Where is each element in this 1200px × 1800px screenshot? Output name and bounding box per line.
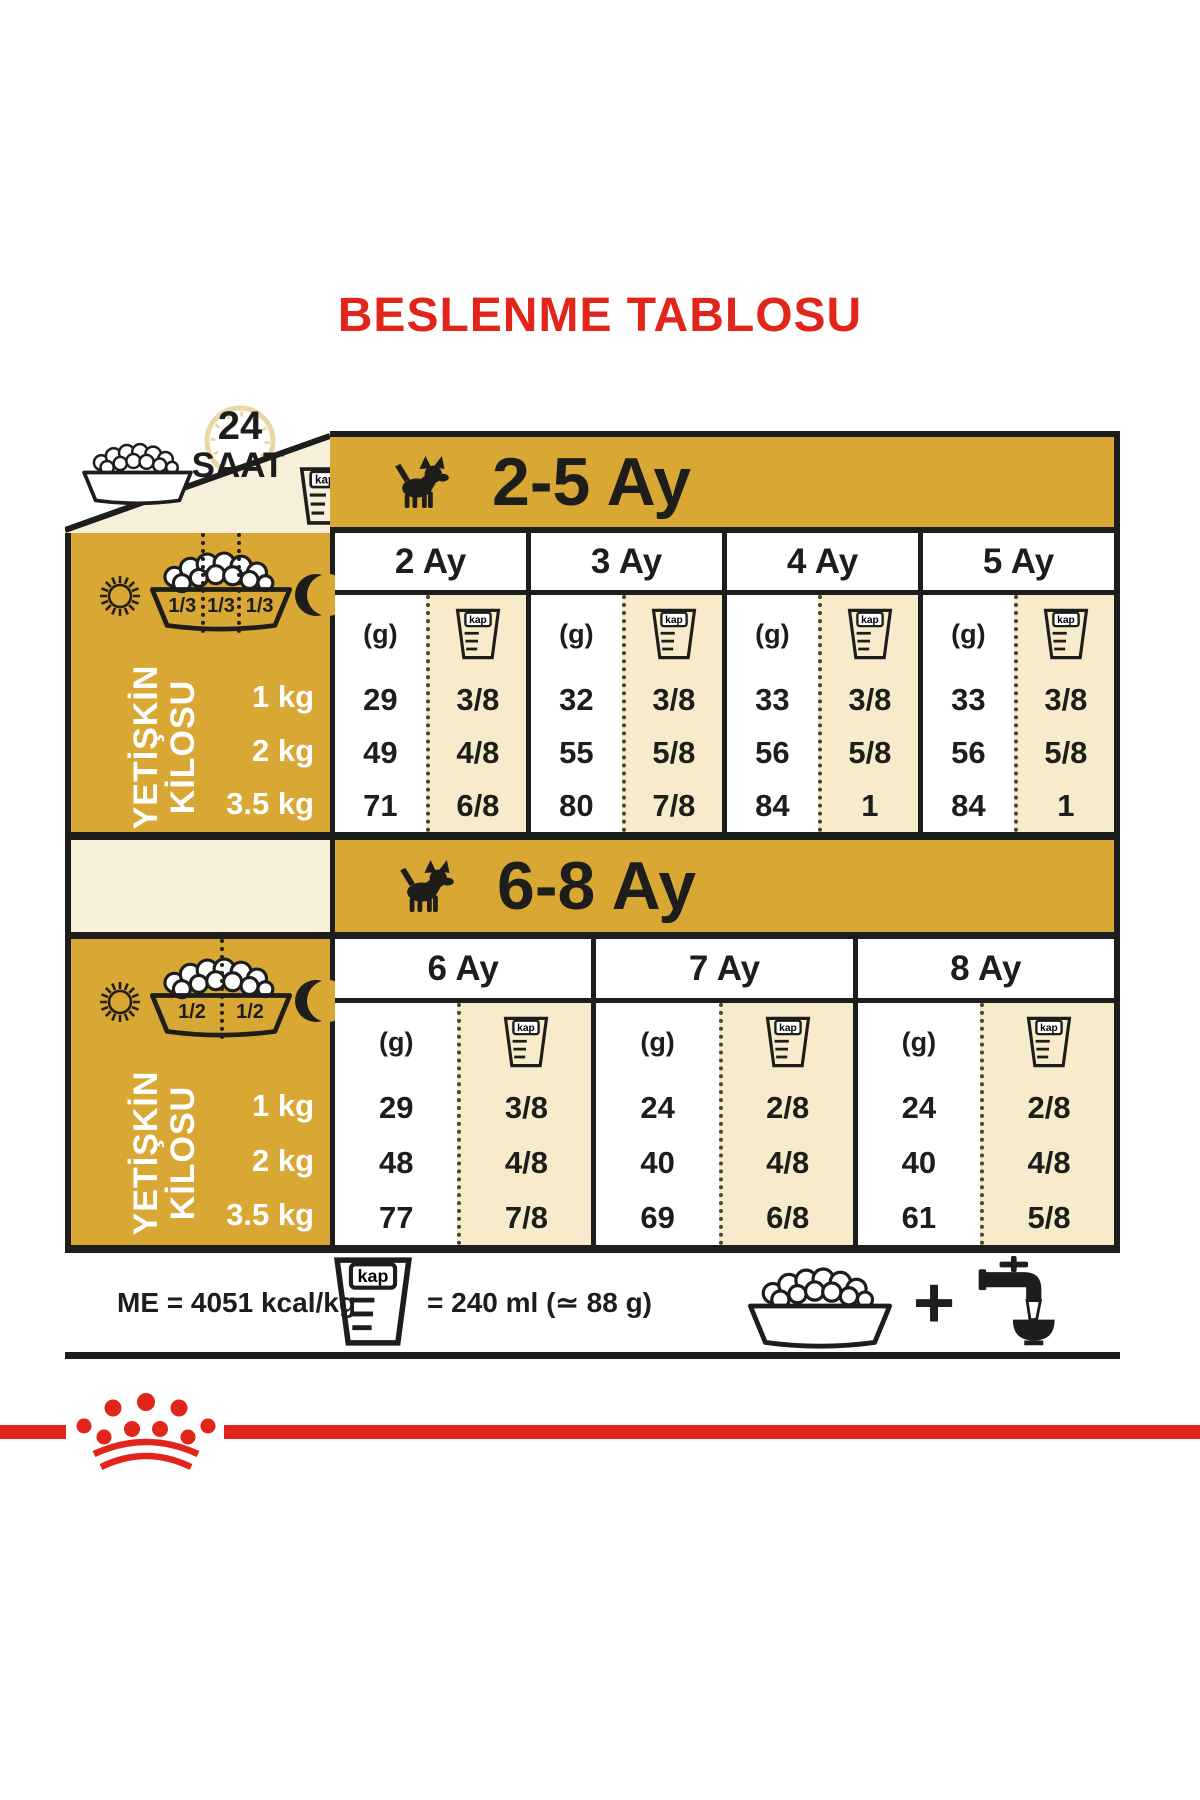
grams-value: 33 xyxy=(727,673,818,726)
cup-subcolumn: kap 2/8 4/8 6/8 xyxy=(719,1003,853,1245)
grams-unit: (g) xyxy=(858,1003,980,1081)
cup-value: 3/8 xyxy=(461,1081,591,1136)
grams-value: 84 xyxy=(923,779,1014,832)
section1-age-band: 2-5 Ay xyxy=(330,431,1120,527)
fraction: 1/3 xyxy=(207,595,235,618)
grams-value: 84 xyxy=(727,779,818,832)
cup-subcolumn: kap 3/8 4/8 6/8 xyxy=(426,595,526,832)
chihuahua-icon xyxy=(395,858,459,914)
me-energy-text: ME = 4051 kcal/kg xyxy=(117,1253,356,1352)
grams-subcolumn: (g) 33 56 84 xyxy=(727,595,818,832)
section2-data-grid: (g) 29 48 77 kap 3/8 4/8 7/8 (g) 24 40 6… xyxy=(330,1003,1120,1245)
portion-divider-dashed xyxy=(237,533,241,633)
grams-value: 80 xyxy=(531,779,622,832)
portion-fractions: 1/3 1/3 1/3 xyxy=(163,595,279,618)
divider-bar xyxy=(65,832,1120,840)
section1-month-header-row: 2 Ay 3 Ay 4 Ay 5 Ay xyxy=(330,527,1120,595)
cup-value: 1 xyxy=(1018,779,1114,832)
cup-value: 6/8 xyxy=(723,1190,853,1245)
month-column-2ay: (g) 29 49 71 kap 3/8 4/8 6/8 xyxy=(335,595,531,832)
measuring-cup-icon: kap xyxy=(822,595,918,673)
svg-text:kap: kap xyxy=(469,615,487,626)
fraction: 1/2 xyxy=(236,1001,264,1024)
hours-24-label: 24 xyxy=(195,406,285,446)
grams-value: 56 xyxy=(727,726,818,779)
grams-subcolumn: (g) 29 49 71 xyxy=(335,595,426,832)
grams-unit: (g) xyxy=(335,595,426,673)
cup-value: 3/8 xyxy=(1018,673,1114,726)
svg-text:kap: kap xyxy=(1057,615,1075,626)
red-divider-right xyxy=(224,1425,1200,1439)
measuring-cup-icon: kap xyxy=(333,1256,413,1352)
saat-label: SAAT xyxy=(184,448,292,483)
section2-title: 6-8 Ay xyxy=(497,852,696,920)
cup-value: 7/8 xyxy=(626,779,722,832)
sun-icon xyxy=(91,567,149,630)
plus-sign: + xyxy=(913,1253,955,1352)
weight-row-label: 2 kg xyxy=(184,1143,314,1183)
svg-text:kap: kap xyxy=(665,615,683,626)
cup-subcolumn: kap 3/8 5/8 1 xyxy=(818,595,918,832)
section2-sidebar: 1/2 1/2 YETİŞKİN KİLOSU 1 kg 2 kg 3.5 kg xyxy=(65,939,330,1245)
cup-value: 3/8 xyxy=(626,673,722,726)
grams-subcolumn: (g) 24 40 69 xyxy=(596,1003,718,1245)
cup-subcolumn: kap 3/8 5/8 1 xyxy=(1014,595,1114,832)
cup-value: 5/8 xyxy=(984,1190,1114,1245)
feeding-table-page: BESLENME TABLOSU 24 SAAT kap xyxy=(0,0,1200,1800)
section2-left-cell xyxy=(65,840,330,932)
cup-value: 5/8 xyxy=(822,726,918,779)
weight-row-label: 2 kg xyxy=(184,733,314,773)
grams-value: 29 xyxy=(335,673,426,726)
grams-value: 77 xyxy=(335,1190,457,1245)
month-header: 6 Ay xyxy=(335,939,596,998)
measuring-cup-icon: kap xyxy=(626,595,722,673)
moon-icon xyxy=(295,569,335,626)
cup-value: 2/8 xyxy=(984,1081,1114,1136)
measuring-cup-icon: kap xyxy=(430,595,526,673)
svg-text:kap: kap xyxy=(358,1266,389,1286)
weight-row-label: 3.5 kg xyxy=(184,1197,314,1237)
month-column-4ay: (g) 33 56 84 kap 3/8 5/8 1 xyxy=(727,595,923,832)
grams-value: 69 xyxy=(596,1190,718,1245)
section1-title: 2-5 Ay xyxy=(492,448,691,516)
fraction: 1/3 xyxy=(246,595,274,618)
grams-value: 61 xyxy=(858,1190,980,1245)
cup-value: 3/8 xyxy=(822,673,918,726)
grams-value: 32 xyxy=(531,673,622,726)
portion-divider-dashed xyxy=(220,939,224,1039)
month-column-5ay: (g) 33 56 84 kap 3/8 5/8 1 xyxy=(923,595,1114,832)
month-column-3ay: (g) 32 55 80 kap 3/8 5/8 7/8 xyxy=(531,595,727,832)
section2-month-header-row: 6 Ay 7 Ay 8 Ay xyxy=(330,939,1120,1003)
grams-unit: (g) xyxy=(727,595,818,673)
grams-value: 40 xyxy=(596,1136,718,1191)
cup-subcolumn: kap 3/8 5/8 7/8 xyxy=(622,595,722,832)
portion-divider-dashed xyxy=(201,533,205,633)
measuring-cup-icon: kap xyxy=(723,1003,853,1081)
month-header: 7 Ay xyxy=(596,939,857,998)
grams-subcolumn: (g) 32 55 80 xyxy=(531,595,622,832)
portion-bowl-icon xyxy=(147,545,295,639)
weight-row-label: 3.5 kg xyxy=(184,786,314,826)
month-header: 3 Ay xyxy=(531,533,727,590)
month-header: 8 Ay xyxy=(858,939,1114,998)
divider-bar xyxy=(65,932,1120,939)
month-header: 4 Ay xyxy=(727,533,923,590)
svg-text:kap: kap xyxy=(861,615,879,626)
measuring-cup-icon: kap xyxy=(461,1003,591,1081)
cup-value: 4/8 xyxy=(430,726,526,779)
measuring-cup-icon: kap xyxy=(984,1003,1114,1081)
footer-row: ME = 4051 kcal/kg kap = 240 ml (≃ 88 g) xyxy=(65,1253,1120,1352)
cup-value: 2/8 xyxy=(723,1081,853,1136)
cup-value: 5/8 xyxy=(626,726,722,779)
month-column-6ay: (g) 29 48 77 kap 3/8 4/8 7/8 xyxy=(335,1003,596,1245)
month-column-7ay: (g) 24 40 69 kap 2/8 4/8 6/8 xyxy=(596,1003,857,1245)
grams-value: 71 xyxy=(335,779,426,832)
svg-text:kap: kap xyxy=(1040,1023,1058,1034)
month-column-8ay: (g) 24 40 61 kap 2/8 4/8 5/8 xyxy=(858,1003,1114,1245)
grams-value: 48 xyxy=(335,1136,457,1191)
grams-value: 24 xyxy=(596,1081,718,1136)
section1-data-grid: (g) 29 49 71 kap 3/8 4/8 6/8 (g) 32 55 8… xyxy=(330,595,1120,832)
grams-value: 55 xyxy=(531,726,622,779)
food-bowl-icon xyxy=(745,1261,895,1356)
grams-unit: (g) xyxy=(531,595,622,673)
section2-age-band: 6-8 Ay xyxy=(330,840,1120,932)
grams-unit: (g) xyxy=(335,1003,457,1081)
grams-value: 33 xyxy=(923,673,1014,726)
section1-sidebar: 1/3 1/3 1/3 YETİŞKİN KİLOSU 1 kg 2 kg 3.… xyxy=(65,533,330,832)
cup-equivalence-text: = 240 ml (≃ 88 g) xyxy=(427,1253,652,1352)
month-header: 2 Ay xyxy=(335,533,531,590)
cup-value: 6/8 xyxy=(430,779,526,832)
royal-canin-crown-logo xyxy=(70,1392,222,1481)
svg-text:kap: kap xyxy=(779,1023,797,1034)
fraction: 1/3 xyxy=(168,595,196,618)
grams-unit: (g) xyxy=(596,1003,718,1081)
water-tap-icon xyxy=(967,1255,1072,1355)
fraction: 1/2 xyxy=(178,1001,206,1024)
svg-text:kap: kap xyxy=(518,1023,536,1034)
moon-icon xyxy=(295,975,335,1032)
grams-value: 49 xyxy=(335,726,426,779)
grams-value: 24 xyxy=(858,1081,980,1136)
sun-icon xyxy=(91,973,149,1036)
cup-value: 1 xyxy=(822,779,918,832)
food-bowl-icon xyxy=(80,438,195,512)
grams-subcolumn: (g) 29 48 77 xyxy=(335,1003,457,1245)
cup-value: 5/8 xyxy=(1018,726,1114,779)
grams-subcolumn: (g) 24 40 61 xyxy=(858,1003,980,1245)
chihuahua-icon xyxy=(390,454,454,510)
red-divider-left xyxy=(0,1425,66,1439)
month-header: 5 Ay xyxy=(923,533,1114,590)
grams-value: 29 xyxy=(335,1081,457,1136)
grams-subcolumn: (g) 33 56 84 xyxy=(923,595,1014,832)
cup-subcolumn: kap 2/8 4/8 5/8 xyxy=(980,1003,1114,1245)
grams-unit: (g) xyxy=(923,595,1014,673)
page-title: BESLENME TABLOSU xyxy=(0,288,1200,343)
cup-value: 4/8 xyxy=(461,1136,591,1191)
weight-row-label: 1 kg xyxy=(184,1088,314,1128)
measuring-cup-icon: kap xyxy=(1018,595,1114,673)
divider-bar xyxy=(65,1352,1120,1359)
cup-value: 3/8 xyxy=(430,673,526,726)
grams-value: 56 xyxy=(923,726,1014,779)
cup-value: 4/8 xyxy=(723,1136,853,1191)
cup-subcolumn: kap 3/8 4/8 7/8 xyxy=(457,1003,591,1245)
cup-value: 7/8 xyxy=(461,1190,591,1245)
weight-row-label: 1 kg xyxy=(184,679,314,719)
cup-value: 4/8 xyxy=(984,1136,1114,1191)
grams-value: 40 xyxy=(858,1136,980,1191)
divider-bar xyxy=(65,1245,1120,1253)
